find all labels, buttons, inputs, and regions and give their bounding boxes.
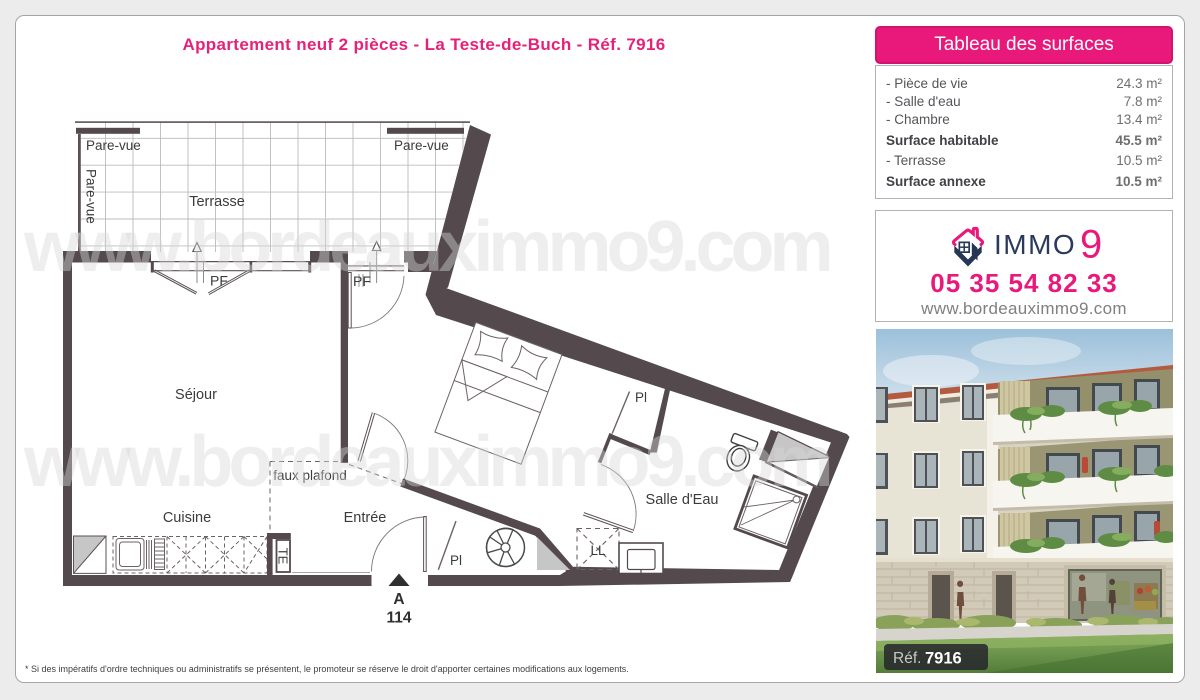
svg-text:TE: TE xyxy=(276,548,291,565)
svg-text:Réf.: Réf. xyxy=(893,650,921,667)
svg-text:Séjour: Séjour xyxy=(175,387,217,403)
svg-text:Cuisine: Cuisine xyxy=(163,510,211,526)
svg-text:7916: 7916 xyxy=(925,650,962,668)
svg-text:Pl: Pl xyxy=(635,390,647,405)
svg-text:Pare-vue: Pare-vue xyxy=(86,138,141,153)
svg-text:Entrée: Entrée xyxy=(344,510,387,526)
svg-text:Pl: Pl xyxy=(450,553,462,568)
svg-text:LL: LL xyxy=(590,543,606,558)
svg-text:114: 114 xyxy=(386,610,411,627)
svg-text:A: A xyxy=(393,591,404,608)
svg-text:Pare-vue: Pare-vue xyxy=(394,138,449,153)
